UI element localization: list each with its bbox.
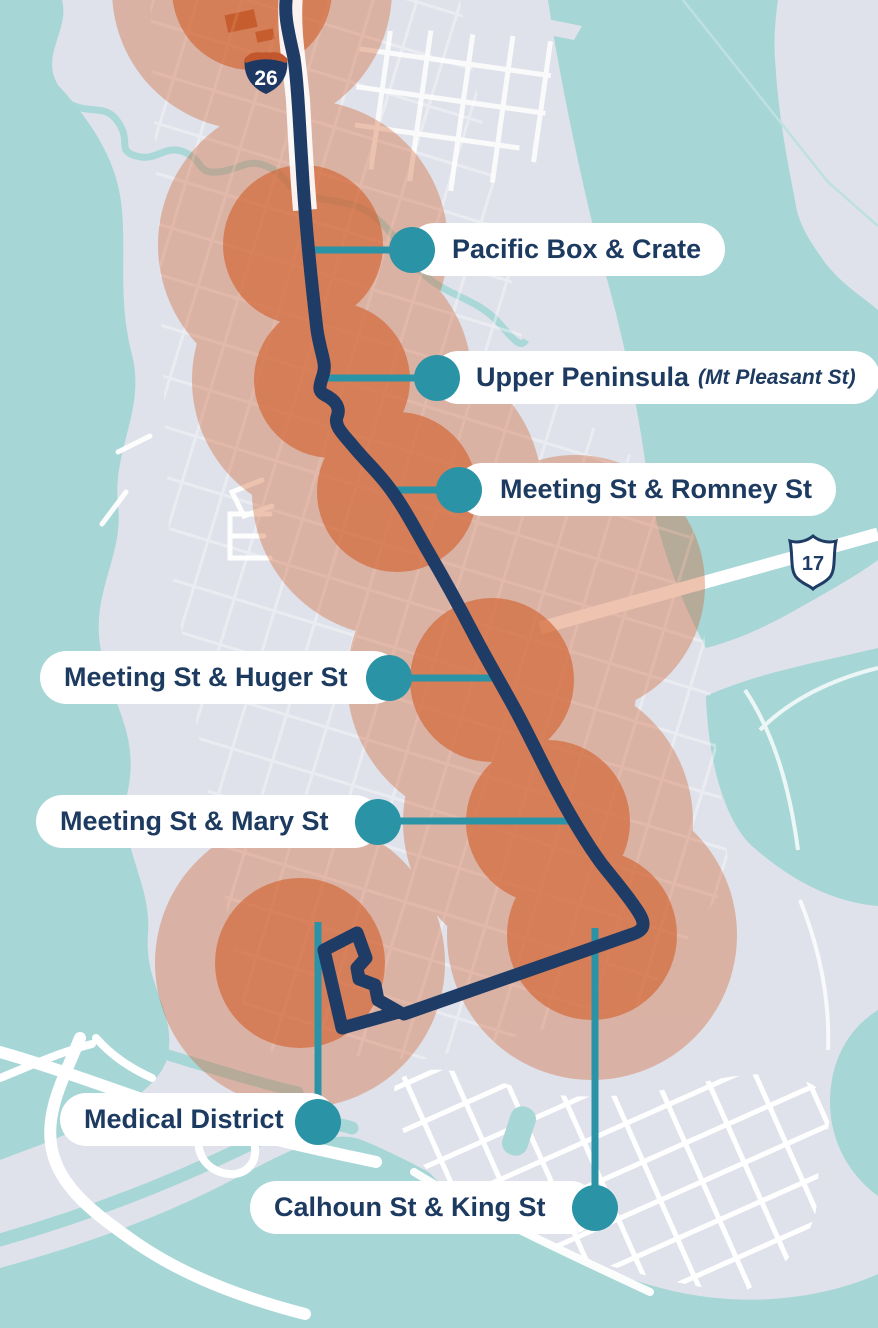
- us-17-number: 17: [802, 553, 824, 575]
- stop-label-text: Upper Peninsula: [476, 362, 689, 393]
- route-map-page: 26 17 Pacific Box & Crate Upper Peninsul…: [0, 0, 878, 1328]
- stop-label-pacific-box-and-crate: Pacific Box & Crate: [408, 223, 725, 276]
- interstate-26-number: 26: [254, 67, 277, 90]
- stop-marker-meeting-and-huger: [366, 655, 412, 701]
- stop-marker-meeting-and-mary: [355, 799, 401, 845]
- stop-marker-upper-peninsula: [414, 355, 460, 401]
- stop-label-upper-peninsula: Upper Peninsula (Mt Pleasant St): [432, 351, 878, 404]
- stop-label-calhoun-and-king: Calhoun St & King St: [250, 1181, 597, 1234]
- stop-label-text: Pacific Box & Crate: [452, 234, 701, 265]
- stop-marker-meeting-and-romney: [436, 467, 482, 513]
- stop-label-text: Calhoun St & King St: [274, 1192, 545, 1223]
- stop-marker-pacific-box-and-crate: [389, 227, 435, 273]
- stop-label-meeting-and-mary: Meeting St & Mary St: [36, 795, 381, 848]
- stop-label-meeting-and-huger: Meeting St & Huger St: [40, 651, 400, 704]
- stop-marker-calhoun-and-king: [572, 1185, 618, 1231]
- stop-label-text: Meeting St & Romney St: [500, 474, 812, 505]
- stop-label-meeting-and-romney: Meeting St & Romney St: [456, 463, 836, 516]
- stop-sublabel-text: (Mt Pleasant St): [698, 366, 856, 390]
- stop-label-text: Meeting St & Huger St: [64, 662, 348, 693]
- stop-marker-medical-district: [295, 1099, 341, 1145]
- stop-label-text: Meeting St & Mary St: [60, 806, 329, 837]
- stop-label-text: Medical District: [84, 1104, 284, 1135]
